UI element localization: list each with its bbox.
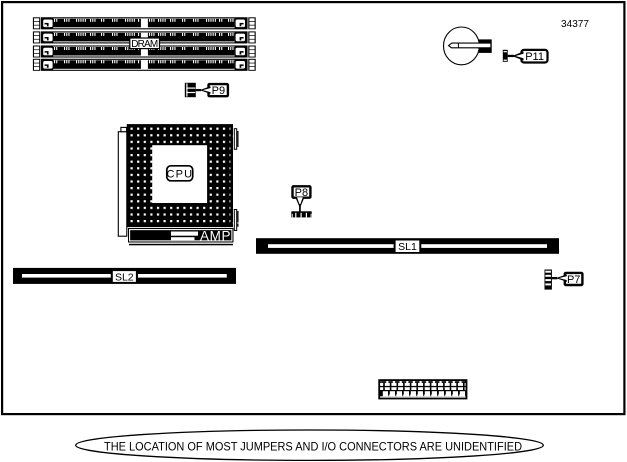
svg-text:34377: 34377 xyxy=(561,19,589,30)
svg-text:P8: P8 xyxy=(295,187,308,199)
svg-text:P9: P9 xyxy=(212,85,225,97)
svg-text:P11: P11 xyxy=(525,51,544,63)
svg-text:DRAM: DRAM xyxy=(131,39,158,50)
svg-text:P7: P7 xyxy=(567,274,580,286)
svg-text:AMP: AMP xyxy=(200,229,231,244)
svg-text:CPU: CPU xyxy=(166,168,193,180)
svg-text:SL2: SL2 xyxy=(115,271,134,283)
svg-text:THE LOCATION OF MOST JUMPERS A: THE LOCATION OF MOST JUMPERS AND I/O CON… xyxy=(104,439,522,453)
svg-text:SL1: SL1 xyxy=(398,241,417,253)
